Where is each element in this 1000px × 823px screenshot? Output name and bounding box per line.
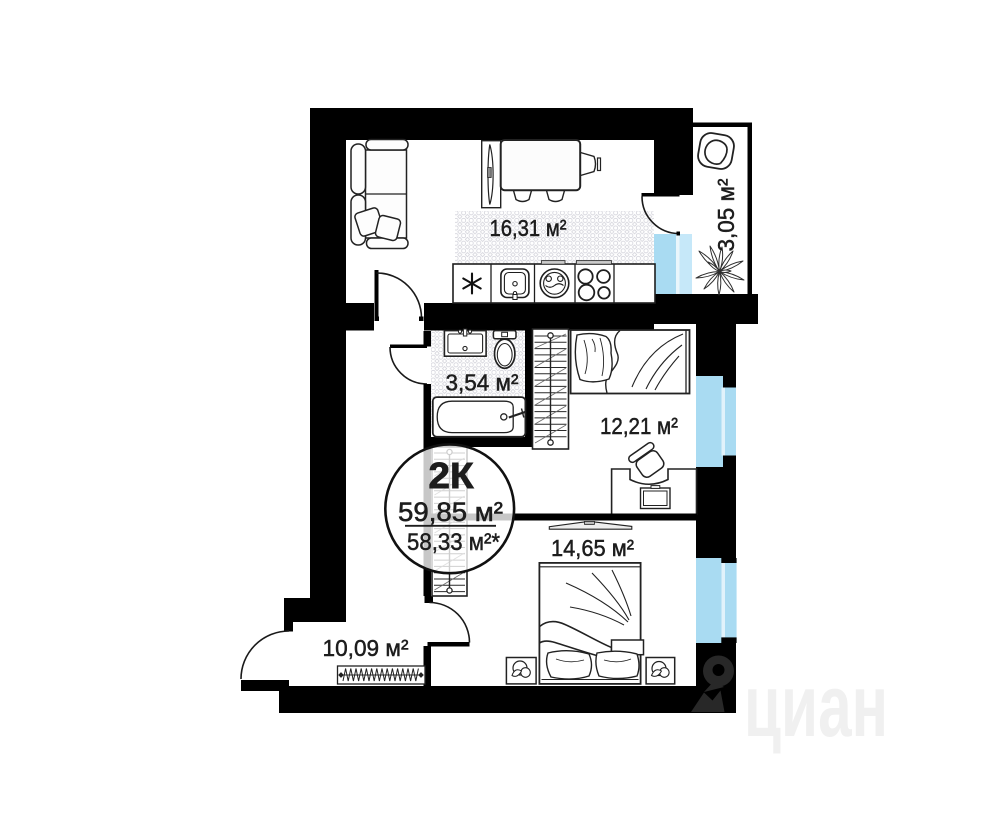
svg-text:2К: 2К: [429, 455, 475, 496]
svg-text:58,33 м²*: 58,33 м²*: [407, 529, 500, 556]
svg-text:14,65 м²: 14,65 м²: [551, 535, 634, 561]
svg-text:12,21 м²: 12,21 м²: [600, 413, 678, 439]
svg-text:16,31 м²: 16,31 м²: [490, 215, 567, 241]
svg-text:циан: циан: [744, 656, 888, 755]
svg-text:3,05 м²: 3,05 м²: [713, 178, 739, 251]
svg-text:10,09 м²: 10,09 м²: [323, 635, 409, 661]
svg-text:3,54 м²: 3,54 м²: [446, 370, 519, 396]
svg-text:59,85 м²: 59,85 м²: [398, 497, 503, 527]
